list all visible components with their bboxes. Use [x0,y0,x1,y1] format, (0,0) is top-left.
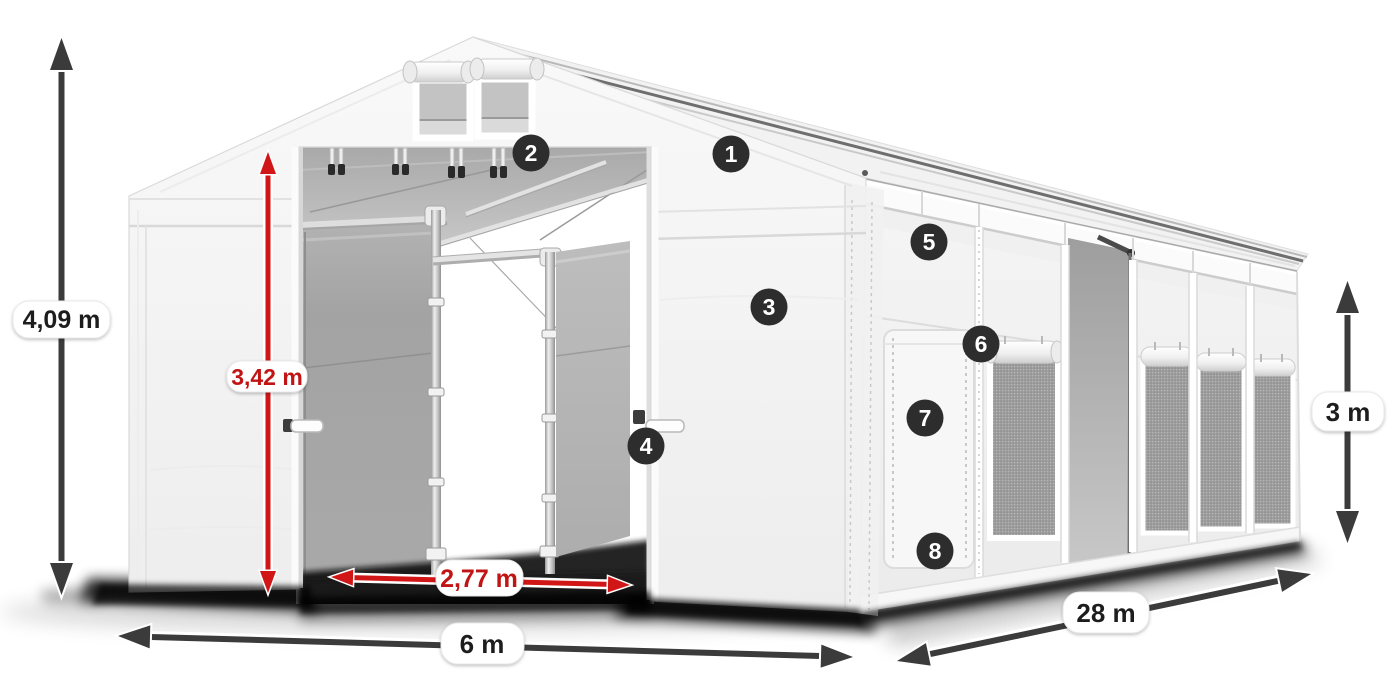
svg-text:3,42 m: 3,42 m [231,364,303,390]
svg-text:8: 8 [929,538,942,564]
svg-text:2,77 m: 2,77 m [440,565,518,593]
svg-text:4,09 m: 4,09 m [23,306,101,334]
svg-text:2: 2 [525,140,538,166]
svg-text:5: 5 [923,229,936,255]
svg-text:1: 1 [725,141,738,167]
svg-text:7: 7 [919,405,932,431]
svg-text:6: 6 [975,331,988,357]
svg-text:6 m: 6 m [460,629,505,659]
svg-text:3: 3 [763,294,776,320]
svg-text:28 m: 28 m [1076,598,1135,628]
svg-text:3 m: 3 m [1326,397,1371,427]
svg-text:4: 4 [640,433,653,459]
